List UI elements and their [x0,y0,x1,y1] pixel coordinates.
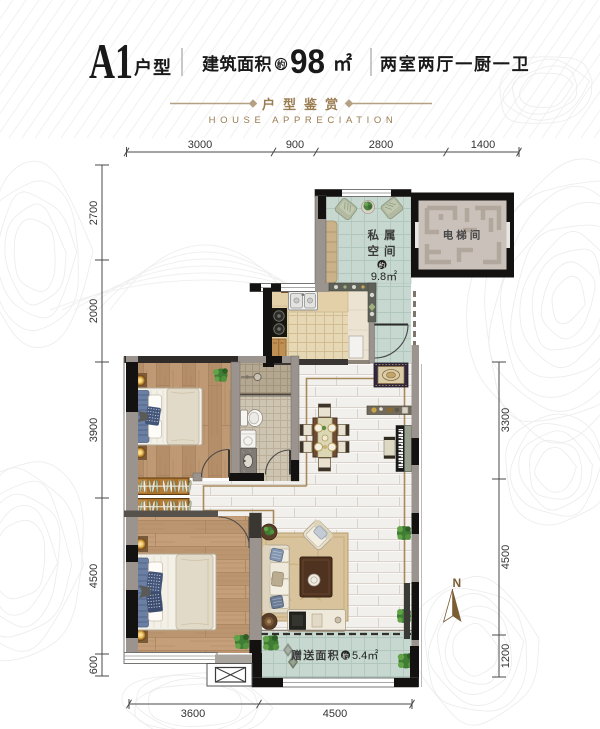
svg-text:3600: 3600 [181,708,205,720]
svg-text:3900: 3900 [88,418,100,442]
svg-text:1200: 1200 [500,644,512,668]
svg-text:HOUSE APPRECIATION: HOUSE APPRECIATION [209,115,398,126]
svg-text:2800: 2800 [369,139,393,151]
svg-text:4500: 4500 [500,545,512,569]
svg-text:約: 約 [342,651,349,660]
svg-text:600: 600 [88,656,100,674]
svg-text:約: 約 [379,261,386,270]
svg-text:私属: 私属 [368,228,401,242]
svg-text:1400: 1400 [471,139,495,151]
svg-text:900: 900 [286,139,304,151]
svg-text:建筑面积: 建筑面积 [202,54,272,74]
svg-text:5.4㎡: 5.4㎡ [352,649,378,662]
svg-text:A1: A1 [89,33,133,89]
svg-text:电梯间: 电梯间 [443,229,484,242]
svg-text:㎡: ㎡ [333,52,352,75]
svg-text:N: N [453,576,462,590]
svg-text:98: 98 [290,43,325,81]
svg-text:2700: 2700 [88,201,100,225]
svg-text:户型: 户型 [134,57,172,78]
svg-text:2000: 2000 [88,299,100,323]
svg-text:3300: 3300 [500,408,512,432]
svg-text:赠送面积: 赠送面积 [291,648,340,662]
svg-text:4500: 4500 [88,564,100,588]
svg-text:两室两厅一厨一卫: 两室两厅一厨一卫 [380,54,530,74]
svg-text:空间: 空间 [368,244,401,258]
svg-text:3000: 3000 [188,139,212,151]
svg-text:9.8㎡: 9.8㎡ [371,270,397,283]
svg-text:4500: 4500 [323,708,347,720]
svg-text:户型鉴赏: 户型鉴赏 [262,97,346,112]
svg-text:約: 約 [277,60,285,70]
